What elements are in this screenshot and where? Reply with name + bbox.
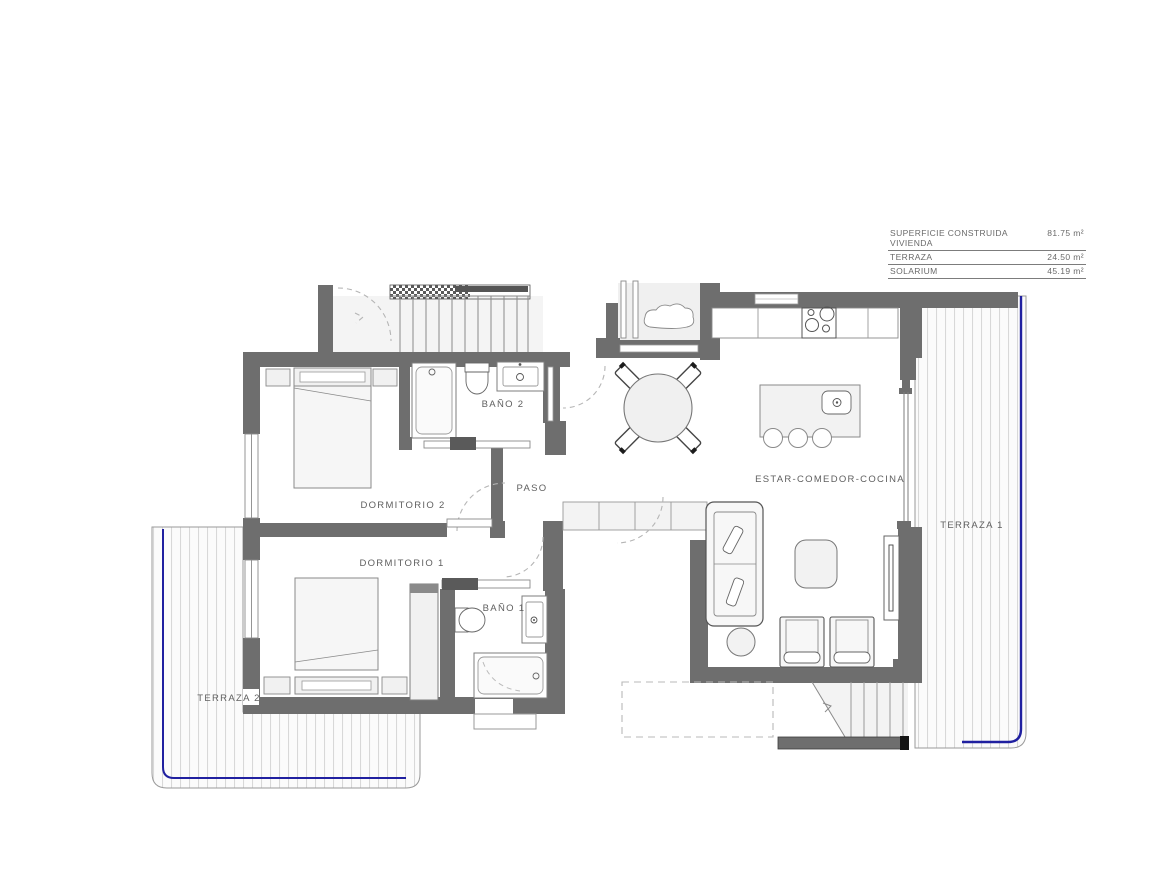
side-table-symbol bbox=[727, 628, 755, 656]
stool-symbol bbox=[813, 429, 832, 448]
area-label: TERRAZA bbox=[890, 252, 932, 262]
closet-band bbox=[563, 502, 707, 530]
room-label-estar: ESTAR-COMEDOR-COCINA bbox=[755, 474, 905, 485]
area-value: 45.19 m² bbox=[1047, 266, 1084, 276]
living-area bbox=[563, 497, 899, 667]
sliding-door bbox=[424, 437, 530, 450]
toilet-symbol bbox=[465, 363, 489, 394]
area-value: 24.50 m² bbox=[1047, 252, 1084, 262]
dining-table-symbol bbox=[624, 374, 692, 442]
tv-unit-symbol bbox=[884, 536, 899, 620]
room-label-bano1: BAÑO 1 bbox=[483, 603, 526, 614]
area-summary-table: SUPERFICIE CONSTRUIDA VIVIENDA 81.75 m² … bbox=[888, 227, 1086, 279]
toilet-symbol bbox=[455, 608, 485, 632]
entry-door-swing-arc bbox=[563, 366, 605, 408]
dining-area bbox=[613, 362, 703, 455]
washbasin-symbol bbox=[497, 362, 544, 391]
room-label-terraza1: TERRAZA 1 bbox=[940, 520, 1003, 531]
area-value: 81.75 m² bbox=[1047, 228, 1084, 248]
nightstand-symbol bbox=[373, 369, 397, 386]
armchair-symbol bbox=[780, 617, 824, 667]
table-row: TERRAZA 24.50 m² bbox=[888, 251, 1086, 265]
area-label: SOLARIUM bbox=[890, 266, 938, 276]
washbasin-symbol bbox=[522, 596, 547, 643]
sofa-symbol bbox=[706, 502, 763, 626]
nightstand-symbol bbox=[266, 369, 290, 386]
nightstand-symbol bbox=[264, 677, 290, 694]
sliding-door bbox=[442, 578, 530, 590]
floor-plan-drawing: BAÑO 2 DORMITORIO 2 PASO DORMITORIO 1 BA… bbox=[0, 0, 1170, 896]
sliding-door bbox=[447, 519, 492, 527]
bano-1-fixtures bbox=[442, 578, 547, 698]
room-label-paso: PASO bbox=[517, 483, 548, 494]
entry-screen bbox=[548, 367, 553, 421]
cooktop-symbol bbox=[802, 307, 836, 338]
wardrobe-symbol bbox=[410, 584, 438, 700]
armchair-symbol bbox=[830, 617, 874, 667]
stool-symbol bbox=[789, 429, 808, 448]
door-swing-arc bbox=[503, 537, 543, 577]
floor-plan-page: BAÑO 2 DORMITORIO 2 PASO DORMITORIO 1 BA… bbox=[0, 0, 1170, 896]
sink-symbol bbox=[822, 391, 851, 414]
room-label-dormitorio1: DORMITORIO 1 bbox=[359, 558, 444, 569]
room-label-terraza2: TERRAZA 2 bbox=[197, 693, 260, 704]
bed-symbol bbox=[294, 368, 371, 488]
table-row: SUPERFICIE CONSTRUIDA VIVIENDA 81.75 m² bbox=[888, 227, 1086, 251]
projection-dashed-outline bbox=[622, 682, 773, 737]
stool-symbol bbox=[764, 429, 783, 448]
table-row: SOLARIUM 45.19 m² bbox=[888, 265, 1086, 279]
kitchen-island bbox=[760, 385, 860, 448]
coffee-table-symbol bbox=[795, 540, 837, 588]
area-label: SUPERFICIE CONSTRUIDA VIVIENDA bbox=[890, 228, 1047, 248]
bathtub-symbol bbox=[412, 363, 456, 438]
bathtub-symbol bbox=[474, 653, 547, 698]
room-label-dormitorio2: DORMITORIO 2 bbox=[360, 500, 445, 511]
kitchen bbox=[712, 307, 898, 448]
bed-symbol bbox=[295, 578, 378, 694]
sliding-glass-door bbox=[904, 392, 908, 521]
room-label-bano2: BAÑO 2 bbox=[482, 399, 525, 410]
nightstand-symbol bbox=[382, 677, 407, 694]
